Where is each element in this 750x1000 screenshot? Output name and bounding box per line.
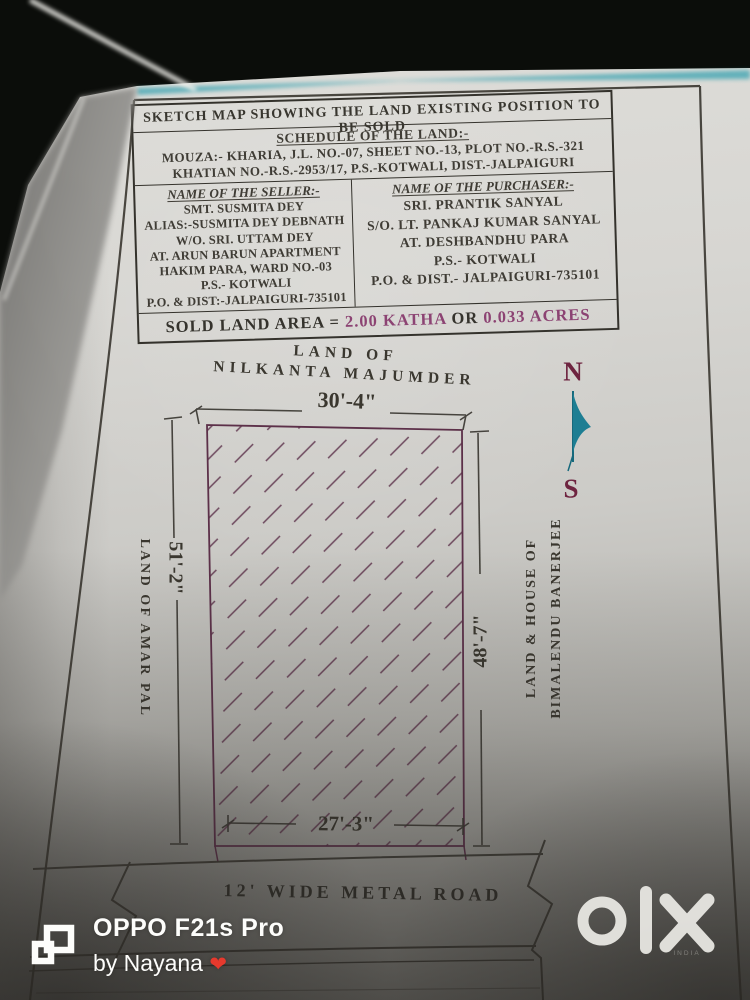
west-neighbor-label: LAND OF AMAR PAL	[136, 539, 152, 718]
author-text: by Nayana	[93, 950, 203, 976]
road-break-left	[112, 862, 136, 958]
sold-area-acres: 0.033 ACRES	[483, 305, 591, 327]
schedule-table: SKETCH MAP SHOWING THE LAND EXISTING POS…	[131, 90, 620, 344]
dimension-right: 48'-7"	[470, 614, 493, 667]
road-break-right	[528, 840, 552, 1000]
compass-north-letter: N	[563, 357, 583, 388]
dimension-top: 30'-4"	[317, 387, 377, 415]
photographed-land-sketch-document: SKETCH MAP SHOWING THE LAND EXISTING POS…	[0, 0, 750, 1000]
parties-row: NAME OF THE SELLER:- SMT. SUSMITA DEY AL…	[135, 172, 617, 314]
dimension-bottom: 27'-3"	[318, 811, 374, 836]
east-neighbor-line1: LAND & HOUSE OF	[524, 538, 540, 698]
seller-cell: NAME OF THE SELLER:- SMT. SUSMITA DEY AL…	[135, 180, 356, 313]
olx-logo: INDIA	[574, 880, 724, 960]
device-watermark: OPPO F21s Pro	[93, 914, 284, 943]
sold-area-prefix: SOLD LAND AREA =	[165, 312, 345, 336]
sold-area-katha: 2.00 KATHA	[345, 309, 447, 331]
dimension-left: 51'-2"	[164, 541, 187, 594]
sold-area-or: OR	[446, 308, 484, 328]
compass-south-letter: S	[563, 474, 578, 505]
purchaser-cell: NAME OF THE PURCHASER:- SRI. PRANTIK SAN…	[352, 172, 616, 307]
compass-arrow	[568, 391, 591, 471]
plot-area-hatched	[207, 425, 464, 846]
heart-icon: ❤	[209, 953, 227, 976]
camera-watermark-icon	[30, 924, 76, 970]
olx-o	[583, 902, 621, 940]
east-neighbor-line2: BIMALENDU BANERJEE	[549, 517, 565, 718]
author-watermark: by Nayana ❤	[93, 950, 227, 977]
olx-sub-text: INDIA	[673, 950, 700, 957]
